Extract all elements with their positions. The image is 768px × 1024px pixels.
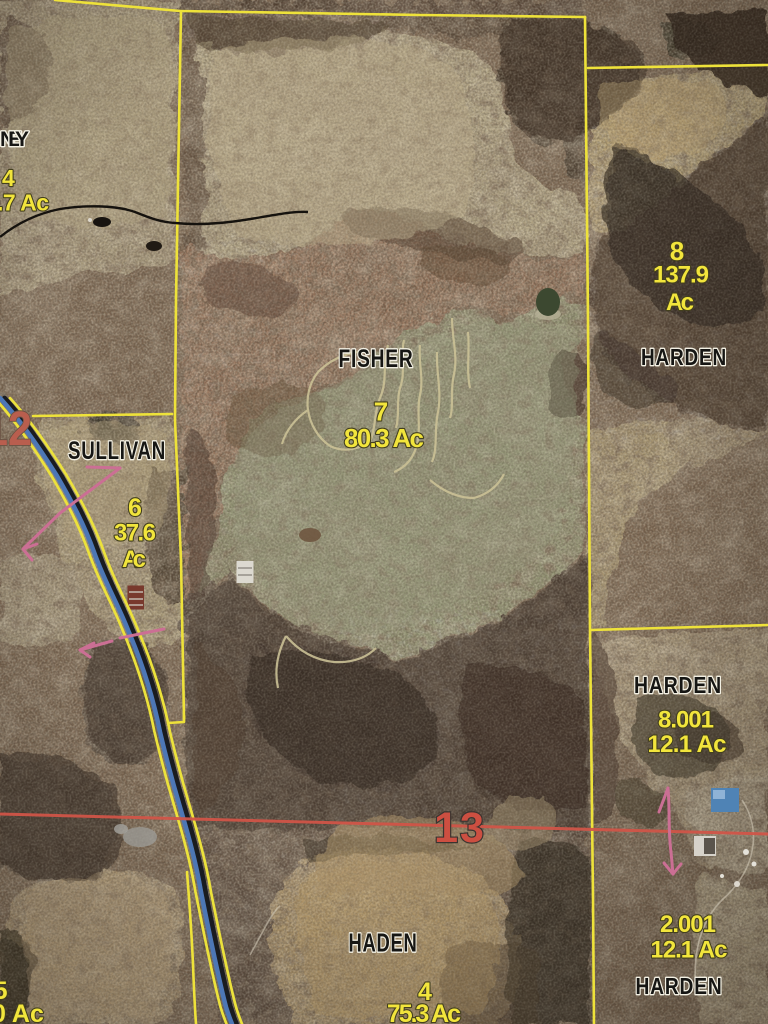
svg-text:4: 4	[2, 165, 15, 191]
svg-text:12: 12	[0, 403, 32, 456]
svg-text:6: 6	[128, 494, 142, 522]
svg-text:Ac: Ac	[122, 546, 146, 573]
svg-text:7: 7	[374, 397, 388, 427]
svg-text:80.3 Ac: 80.3 Ac	[344, 423, 424, 453]
svg-text:HARDEN: HARDEN	[641, 344, 727, 370]
svg-text:2.001: 2.001	[660, 911, 716, 938]
svg-text:0 Ac: 0 Ac	[0, 1000, 44, 1024]
svg-text:NEY: NEY	[0, 128, 30, 151]
svg-text:HARDEN: HARDEN	[636, 973, 723, 999]
svg-text:HARDEN: HARDEN	[634, 672, 722, 698]
svg-text:Ac: Ac	[666, 289, 694, 316]
svg-text:75.3 Ac: 75.3 Ac	[387, 1000, 461, 1024]
svg-text:13: 13	[434, 804, 486, 852]
svg-text:37.6: 37.6	[114, 520, 156, 547]
svg-text:8.001: 8.001	[658, 707, 714, 734]
svg-text:HADEN: HADEN	[349, 928, 418, 958]
svg-text:FISHER: FISHER	[339, 345, 414, 373]
svg-text:12.1 Ac: 12.1 Ac	[651, 937, 728, 964]
svg-text:137.9: 137.9	[653, 262, 709, 289]
svg-text:12.1 Ac: 12.1 Ac	[648, 731, 727, 758]
svg-text:.7 Ac: .7 Ac	[0, 190, 49, 216]
svg-text:SULLIVAN: SULLIVAN	[68, 437, 166, 465]
